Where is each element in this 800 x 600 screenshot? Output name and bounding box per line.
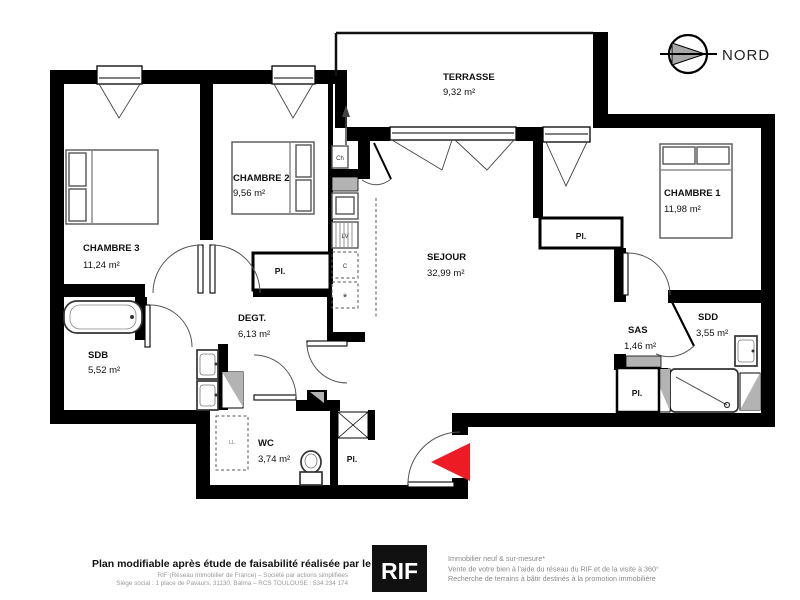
label-fridge: * — [343, 292, 348, 304]
label-wc: WC — [258, 438, 274, 449]
label-water-heater: Ch — [336, 156, 344, 162]
beds — [66, 142, 732, 238]
footer: Plan modifiable après étude de faisabili… — [92, 545, 659, 592]
floor-plan-drawing: NORD TERRASSE 9,32 m² CHAMBRE 2 9,56 m² … — [0, 0, 800, 600]
footer-legal-1: RIF (Réseau Immobilier de France) – Soci… — [158, 572, 348, 579]
label-chambre3: CHAMBRE 3 — [83, 243, 139, 254]
area-degt: 6,13 m² — [238, 329, 270, 340]
footer-service-1: Immobilier neuf & sur-mesure* — [448, 554, 545, 563]
kitchen-sink — [332, 193, 358, 219]
window-terrace-slider — [390, 127, 516, 170]
floor-plan-page: NORD TERRASSE 9,32 m² CHAMBRE 2 9,56 m² … — [0, 0, 800, 600]
footer-legal-2: Siège social : 1 place de Pavaurs, 31130… — [116, 580, 348, 587]
area-chambre3: 11,24 m² — [83, 260, 120, 271]
vanity-double-sink — [197, 350, 218, 410]
area-sejour: 32,99 m² — [427, 268, 465, 279]
kitchen-door-leaf — [374, 143, 391, 179]
entrance-arrow — [431, 443, 470, 481]
area-sas: 1,46 m² — [624, 341, 656, 352]
window-chambre2 — [272, 66, 315, 118]
label-cooker: C — [343, 264, 348, 270]
label-closet-degt: Pl. — [275, 266, 285, 276]
label-sdd: SDD — [698, 312, 718, 323]
window-chambre3 — [97, 66, 142, 118]
door-sdd — [656, 302, 694, 357]
terrace-railing — [336, 33, 593, 76]
kitchen-duct — [332, 177, 358, 191]
area-chambre2: 9,56 m² — [233, 188, 265, 199]
sas-threshold — [626, 356, 661, 368]
duct-shower-right — [740, 373, 760, 410]
area-terrasse: 9,32 m² — [443, 87, 475, 98]
bed-chambre3 — [66, 150, 158, 224]
label-dishwasher: LV — [342, 234, 349, 240]
walls — [50, 32, 775, 499]
compass-label: NORD — [722, 47, 770, 64]
door-chambre3 — [153, 245, 203, 293]
compass: NORD — [660, 35, 770, 73]
label-chambre2: CHAMBRE 2 — [233, 173, 289, 184]
rif-logo-text: RIF — [381, 558, 418, 584]
door-sejour — [307, 341, 347, 383]
footer-service-3: Recherche de terrains à bâtir destinés à… — [448, 574, 656, 583]
duct-wc-left — [222, 372, 243, 408]
door-wc — [254, 355, 296, 400]
label-terrasse: TERRASSE — [443, 72, 495, 83]
gaine-x-box — [338, 412, 368, 438]
label-degt: DEGT. — [238, 313, 266, 324]
area-chambre1: 11,98 m² — [664, 204, 701, 215]
area-sdd: 3,55 m² — [696, 328, 728, 339]
shower — [670, 369, 738, 412]
closet-degt — [253, 253, 330, 290]
footer-service-2: Vente de votre bien à l'aide du réseau d… — [448, 565, 659, 574]
label-closet-wc: Pl. — [347, 454, 357, 464]
area-sdb: 5,52 m² — [88, 365, 120, 376]
label-laundry: LL — [229, 440, 235, 446]
label-chambre1: CHAMBRE 1 — [664, 188, 721, 199]
area-wc: 3,74 m² — [258, 454, 290, 465]
label-closet-sas: Pl. — [632, 388, 642, 398]
window-sejour-east — [543, 127, 590, 186]
bathtub — [64, 301, 142, 333]
label-closet-sejour: Pl. — [576, 231, 586, 241]
label-sejour: SEJOUR — [427, 252, 466, 263]
footer-headline: Plan modifiable après étude de faisabili… — [92, 558, 391, 570]
door-sdb — [145, 305, 192, 347]
label-sas: SAS — [628, 325, 648, 336]
label-sdb: SDB — [88, 350, 108, 361]
door-chambre1 — [623, 253, 670, 295]
toilet — [300, 451, 322, 485]
sdd-sink — [735, 336, 757, 366]
